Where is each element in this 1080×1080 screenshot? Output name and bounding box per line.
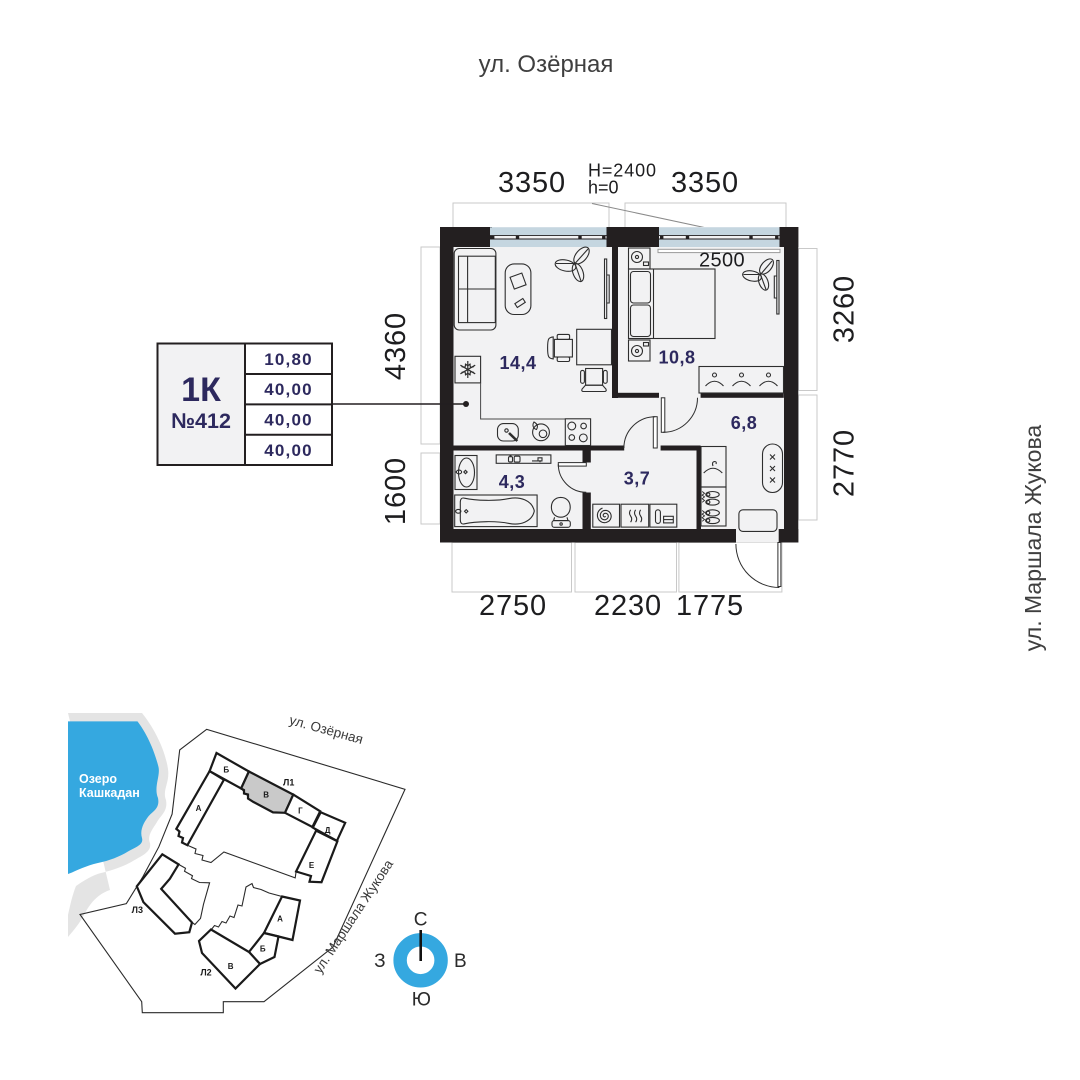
svg-text:2500: 2500 — [699, 250, 745, 272]
svg-text:В: В — [263, 791, 269, 800]
svg-text:1К: 1К — [181, 371, 221, 409]
svg-text:А: А — [196, 804, 202, 813]
svg-text:40,00: 40,00 — [264, 380, 313, 399]
svg-text:Б: Б — [223, 766, 229, 775]
svg-text:4,3: 4,3 — [499, 472, 526, 492]
svg-text:З: З — [374, 951, 385, 972]
svg-text:ул. Маршала Жукова: ул. Маршала Жукова — [1020, 425, 1046, 652]
svg-text:3260: 3260 — [829, 275, 861, 343]
svg-text:Озеро: Озеро — [79, 772, 117, 786]
svg-text:Д: Д — [325, 826, 331, 835]
svg-text:Л2: Л2 — [200, 968, 211, 978]
svg-text:40,00: 40,00 — [264, 441, 313, 460]
svg-text:Ю: Ю — [412, 989, 431, 1010]
svg-text:Б: Б — [260, 944, 266, 953]
svg-text:40,00: 40,00 — [264, 411, 313, 430]
svg-text:№412: №412 — [171, 409, 231, 433]
svg-text:10,80: 10,80 — [264, 350, 313, 369]
svg-text:Г: Г — [298, 806, 303, 815]
svg-text:А: А — [277, 914, 283, 923]
svg-text:2750: 2750 — [479, 590, 547, 622]
svg-text:10,8: 10,8 — [658, 348, 695, 368]
svg-text:ул. Озёрная: ул. Озёрная — [479, 51, 614, 78]
svg-text:2770: 2770 — [829, 429, 861, 497]
svg-text:С: С — [414, 910, 428, 931]
svg-text:Кашкадан: Кашкадан — [79, 786, 140, 800]
svg-text:В: В — [228, 962, 234, 971]
svg-text:14,4: 14,4 — [499, 353, 536, 373]
svg-text:Л1: Л1 — [283, 778, 294, 788]
svg-text:3350: 3350 — [498, 167, 566, 199]
svg-text:Л3: Л3 — [132, 905, 143, 915]
svg-text:Е: Е — [309, 861, 315, 870]
svg-text:4360: 4360 — [380, 312, 412, 380]
svg-text:6,8: 6,8 — [731, 413, 758, 433]
svg-text:2230: 2230 — [594, 590, 662, 622]
svg-text:1775: 1775 — [676, 590, 744, 622]
svg-text:h=0: h=0 — [588, 178, 619, 198]
svg-text:3,7: 3,7 — [624, 469, 651, 489]
svg-text:1600: 1600 — [380, 457, 412, 525]
svg-text:В: В — [454, 951, 467, 972]
svg-text:ул. Озёрная: ул. Озёрная — [288, 712, 365, 747]
svg-text:3350: 3350 — [671, 167, 739, 199]
